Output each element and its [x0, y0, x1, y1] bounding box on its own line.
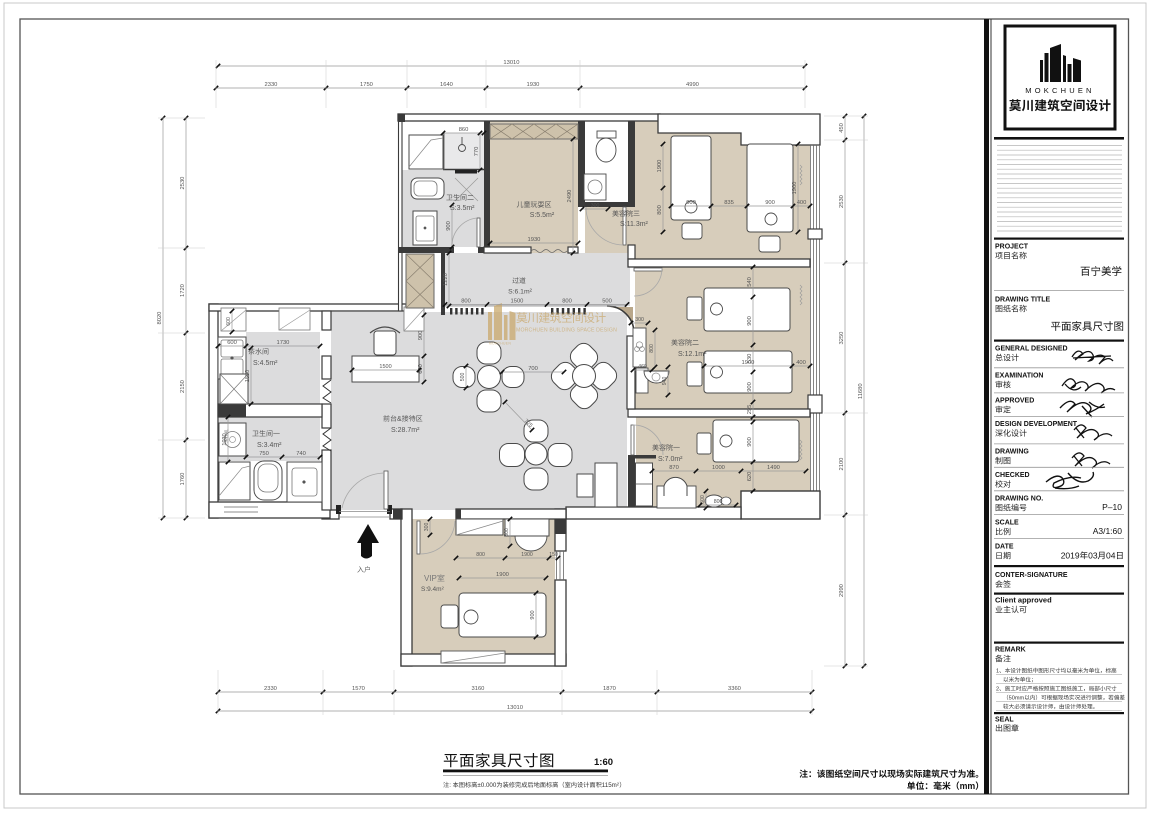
svg-text:2530: 2530 [839, 195, 845, 208]
svg-text:VIP: VIP [424, 574, 437, 583]
svg-text:600: 600 [227, 340, 237, 346]
svg-text:MOKCHUEN: MOKCHUEN [1025, 86, 1094, 95]
svg-text:1640: 1640 [440, 82, 453, 88]
svg-text:1:60: 1:60 [594, 757, 613, 768]
svg-text:1900: 1900 [496, 572, 509, 578]
svg-text:1900: 1900 [742, 360, 755, 366]
svg-text:900: 900 [686, 200, 696, 206]
svg-text:900: 900 [418, 331, 424, 341]
svg-text:400: 400 [796, 360, 806, 366]
svg-text:940: 940 [662, 377, 668, 386]
svg-text:750: 750 [259, 451, 269, 457]
svg-text:450: 450 [839, 123, 845, 133]
svg-text:800: 800 [476, 552, 485, 558]
svg-text:1500: 1500 [379, 364, 391, 370]
svg-text:1870: 1870 [603, 686, 616, 692]
svg-text:APPROVED: APPROVED [995, 398, 1034, 405]
svg-text:1930: 1930 [527, 82, 540, 88]
svg-text:&: & [397, 416, 402, 423]
svg-text:295: 295 [747, 405, 753, 415]
svg-text:S:3.5m²: S:3.5m² [450, 205, 475, 212]
svg-text:900: 900 [530, 610, 536, 619]
svg-text:900: 900 [747, 382, 753, 392]
svg-text:03: 03 [1088, 551, 1098, 561]
svg-text:1730: 1730 [277, 340, 290, 346]
svg-text:900: 900 [765, 200, 775, 206]
svg-text:1030: 1030 [222, 433, 228, 445]
svg-text:1750: 1750 [360, 82, 373, 88]
svg-text:500: 500 [602, 298, 612, 304]
svg-text:2990: 2990 [839, 584, 845, 597]
svg-text:A3/1:60: A3/1:60 [1093, 526, 1123, 536]
svg-text:1720: 1720 [180, 284, 186, 297]
svg-text:50mm: 50mm [1009, 696, 1025, 702]
svg-text:DRAWING: DRAWING [995, 449, 1029, 456]
svg-text:540: 540 [747, 277, 753, 287]
svg-text:115m²: 115m² [602, 782, 619, 789]
svg-text:800: 800 [562, 298, 572, 304]
svg-text:860: 860 [459, 127, 469, 133]
svg-text:900: 900 [446, 221, 452, 231]
svg-text:500: 500 [504, 528, 510, 537]
svg-text:1490: 1490 [767, 465, 780, 471]
svg-text:S:12.1m²: S:12.1m² [678, 351, 707, 358]
svg-text:GENERAL DESIGNED: GENERAL DESIGNED [995, 346, 1068, 353]
svg-text:8020: 8020 [157, 312, 163, 325]
svg-text:CONTER-SIGNATURE: CONTER-SIGNATURE [995, 572, 1068, 579]
svg-text:1760: 1760 [180, 473, 186, 486]
svg-text:CHECKED: CHECKED [995, 472, 1030, 479]
svg-text:300: 300 [591, 203, 600, 209]
svg-text:500: 500 [460, 373, 466, 382]
svg-text:13010: 13010 [503, 60, 519, 66]
svg-text:Client approved: Client approved [995, 596, 1052, 605]
svg-text:S:11.3m²: S:11.3m² [620, 221, 649, 228]
svg-text:1570: 1570 [352, 686, 365, 692]
svg-text:S:7.0m²: S:7.0m² [658, 456, 683, 463]
svg-text:1930: 1930 [528, 237, 541, 243]
svg-text:900: 900 [747, 316, 753, 326]
svg-text:11680: 11680 [858, 383, 864, 399]
svg-text:870: 870 [669, 465, 679, 471]
svg-text:800: 800 [657, 205, 663, 215]
svg-text:4990: 4990 [686, 82, 699, 88]
svg-text:2330: 2330 [264, 686, 277, 692]
svg-text:460: 460 [638, 364, 647, 370]
svg-text:300: 300 [424, 523, 430, 532]
svg-text:2150: 2150 [180, 380, 186, 393]
svg-text:04: 04 [1106, 551, 1116, 561]
svg-text:2530: 2530 [180, 177, 186, 190]
svg-text:MOKCHUEN: MOKCHUEN [489, 342, 511, 346]
svg-text:770: 770 [474, 147, 480, 157]
svg-text:800: 800 [714, 499, 723, 505]
svg-text:PROJECT: PROJECT [995, 244, 1029, 251]
svg-text:S:4.5m²: S:4.5m² [253, 360, 278, 367]
svg-text::: : [449, 782, 451, 789]
svg-text:DESIGN DEVELOPMENT: DESIGN DEVELOPMENT [995, 421, 1078, 428]
svg-text:DRAWING TITLE: DRAWING TITLE [995, 297, 1051, 304]
svg-text:2330: 2330 [265, 82, 278, 88]
svg-text:2: 2 [996, 687, 999, 693]
svg-text:900: 900 [747, 437, 753, 447]
svg-text:3160: 3160 [472, 686, 485, 692]
svg-text:±0.000: ±0.000 [477, 782, 496, 789]
svg-text:DATE: DATE [995, 544, 1014, 551]
svg-text:1: 1 [996, 669, 999, 675]
svg-text:2490: 2490 [567, 190, 573, 203]
svg-text:S:6.1m²: S:6.1m² [508, 289, 533, 296]
svg-text:2100: 2100 [839, 458, 845, 471]
svg-text:SEAL: SEAL [995, 717, 1014, 724]
svg-text:1550: 1550 [245, 370, 251, 382]
svg-text:700: 700 [528, 366, 538, 372]
svg-text:300: 300 [635, 317, 644, 323]
svg-text:1900: 1900 [792, 182, 798, 195]
svg-text:S:5.5m²: S:5.5m² [530, 212, 555, 219]
svg-text:13010: 13010 [507, 705, 523, 711]
svg-text:SCALE: SCALE [995, 520, 1019, 527]
svg-text:150: 150 [549, 552, 558, 558]
svg-text:1000: 1000 [712, 465, 725, 471]
svg-text:3250: 3250 [839, 332, 845, 345]
svg-text:1900: 1900 [657, 160, 663, 173]
svg-text:835: 835 [724, 200, 734, 206]
svg-text:S:28.7m²: S:28.7m² [391, 427, 420, 434]
svg-text:S:9.4m²: S:9.4m² [421, 586, 445, 593]
svg-text:620: 620 [747, 472, 753, 482]
svg-text:1220: 1220 [443, 273, 449, 286]
svg-text:mm: mm [960, 781, 976, 791]
svg-text:500: 500 [700, 495, 706, 504]
svg-text:S:3.4m²: S:3.4m² [257, 442, 282, 449]
svg-text:800: 800 [649, 344, 655, 353]
svg-text:2019: 2019 [1061, 551, 1080, 561]
svg-text:3360: 3360 [728, 686, 741, 692]
svg-text:MORCHUEN BUILDING SPACE DESIGN: MORCHUEN BUILDING SPACE DESIGN [516, 328, 617, 334]
svg-text:740: 740 [296, 451, 306, 457]
svg-text:600: 600 [226, 317, 232, 326]
svg-text:800: 800 [461, 298, 471, 304]
svg-text:DRAWING NO.: DRAWING NO. [995, 496, 1043, 503]
svg-text:1500: 1500 [511, 298, 524, 304]
svg-text:REMARK: REMARK [995, 647, 1026, 654]
svg-text:P–10: P–10 [1102, 502, 1122, 512]
svg-text:EXAMINATION: EXAMINATION [995, 373, 1043, 380]
svg-text:1900: 1900 [521, 552, 533, 558]
